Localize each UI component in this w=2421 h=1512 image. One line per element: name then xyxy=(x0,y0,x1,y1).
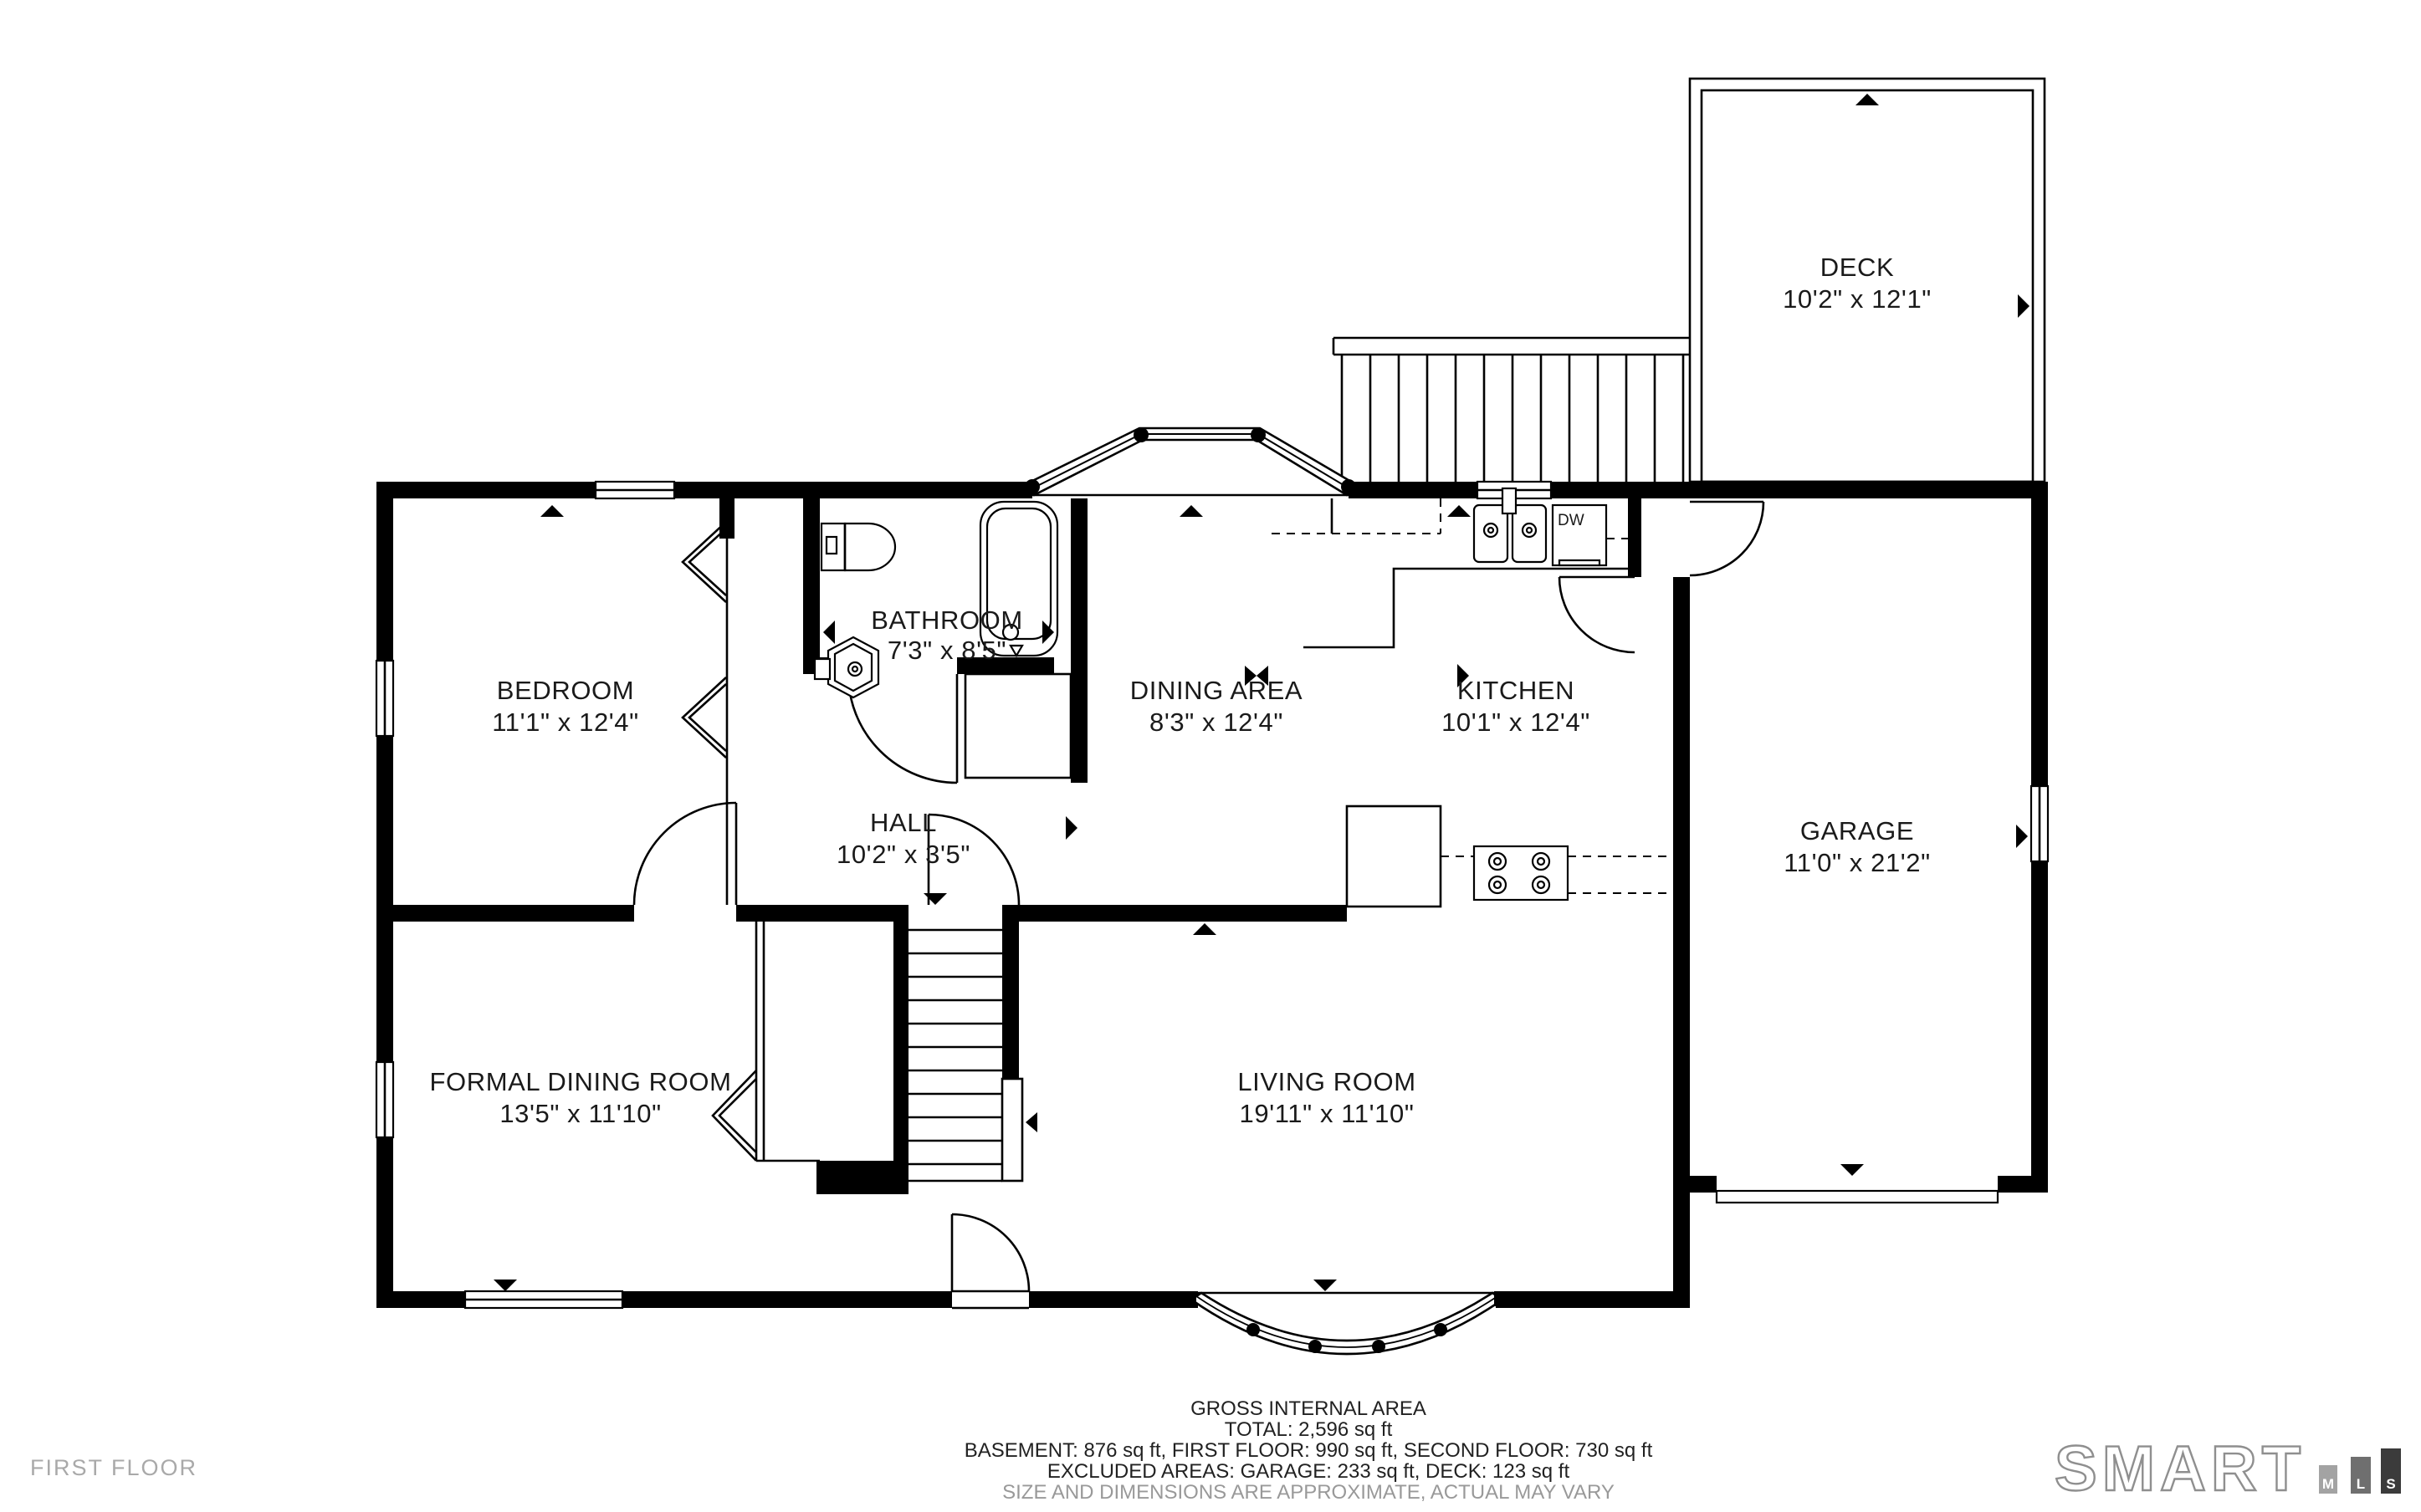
bedroom-closet xyxy=(683,522,727,905)
toilet xyxy=(822,524,895,570)
footer-gross-area: GROSS INTERNAL AREA xyxy=(1190,1397,1426,1420)
bedroom-label: BEDROOM xyxy=(497,676,634,705)
garage-dims: 11'0" x 21'2" xyxy=(1784,848,1931,877)
logo-bar-m-letter: M xyxy=(2322,1476,2334,1492)
smartmls-logo: SMART M L S xyxy=(2055,1433,2401,1504)
logo-bar-l-letter: L xyxy=(2357,1476,2365,1492)
kitchen-sink xyxy=(1474,488,1546,562)
dining-bottom-window xyxy=(465,1291,622,1308)
dishwasher: DW xyxy=(1553,505,1628,565)
footer-total: TOTAL: 2,596 sq ft xyxy=(1225,1418,1393,1441)
windows xyxy=(376,482,2048,1308)
deck-outline xyxy=(1333,79,2045,482)
bedroom-top-window xyxy=(596,482,674,498)
cooktop xyxy=(1441,846,1673,900)
living-room-dims: 19'11" x 11'10" xyxy=(1240,1099,1415,1128)
hall-label: HALL xyxy=(870,808,937,837)
footer-excluded: EXCLUDED AREAS: GARAGE: 233 sq ft, DECK:… xyxy=(1047,1460,1570,1483)
bathroom-label: BATHROOM xyxy=(871,605,1023,635)
floorplan-drawing: DW xyxy=(0,0,2421,1512)
deck-dims: 10'2" x 12'1" xyxy=(1783,284,1932,314)
kitchen-label: KITCHEN xyxy=(1457,676,1574,705)
hall-closet xyxy=(965,674,1071,778)
kitchen-dims: 10'1" x 12'4" xyxy=(1441,707,1590,737)
bathroom-dims: 7'3" x 8'5" xyxy=(888,636,1006,665)
logo-word: SMART xyxy=(2055,1433,2306,1504)
formal-dining-dims: 13'5" x 11'10" xyxy=(499,1099,661,1128)
kitchen-island xyxy=(1347,806,1441,907)
footer-floors: BASEMENT: 876 sq ft, FIRST FLOOR: 990 sq… xyxy=(965,1439,1653,1462)
logo-bar-s-letter: S xyxy=(2386,1476,2395,1492)
deck-stair-slats xyxy=(1342,355,1683,482)
garage-label: GARAGE xyxy=(1800,816,1914,845)
garage-door xyxy=(1717,1191,1998,1203)
bedroom-dims: 11'1" x 12'4" xyxy=(492,707,639,737)
formal-dining-label: FORMAL DINING ROOM xyxy=(430,1067,732,1096)
dining-area-label: DINING AREA xyxy=(1130,676,1303,705)
bedroom-left-window xyxy=(376,661,393,736)
bedroom-door xyxy=(634,803,736,905)
garage-right-window xyxy=(2031,786,2048,861)
deck-label: DECK xyxy=(1820,253,1895,282)
walls xyxy=(376,482,2048,1308)
dining-area-dims: 8'3" x 12'4" xyxy=(1149,707,1283,737)
front-door xyxy=(952,1214,1029,1308)
dining-left-window xyxy=(376,1062,393,1137)
hall-dims: 10'2" x 3'5" xyxy=(837,840,970,869)
dining-closet xyxy=(713,922,820,1161)
room-labels: DECK 10'2" x 12'1" BEDROOM 11'1" x 12'4"… xyxy=(430,253,1932,1128)
dishwasher-label: DW xyxy=(1558,512,1584,529)
bay-window xyxy=(1024,427,1357,495)
footer: GROSS INTERNAL AREA TOTAL: 2,596 sq ft B… xyxy=(965,1397,1653,1504)
garage-entry-door xyxy=(1690,502,1763,575)
floor-label: FIRST FLOOR xyxy=(30,1455,197,1480)
footer-disclaimer: SIZE AND DIMENSIONS ARE APPROXIMATE, ACT… xyxy=(1002,1481,1615,1504)
living-room-label: LIVING ROOM xyxy=(1237,1067,1415,1096)
floorplan-page: DW xyxy=(0,0,2421,1512)
bathroom-sink xyxy=(815,637,878,697)
bow-window xyxy=(1181,1291,1509,1354)
